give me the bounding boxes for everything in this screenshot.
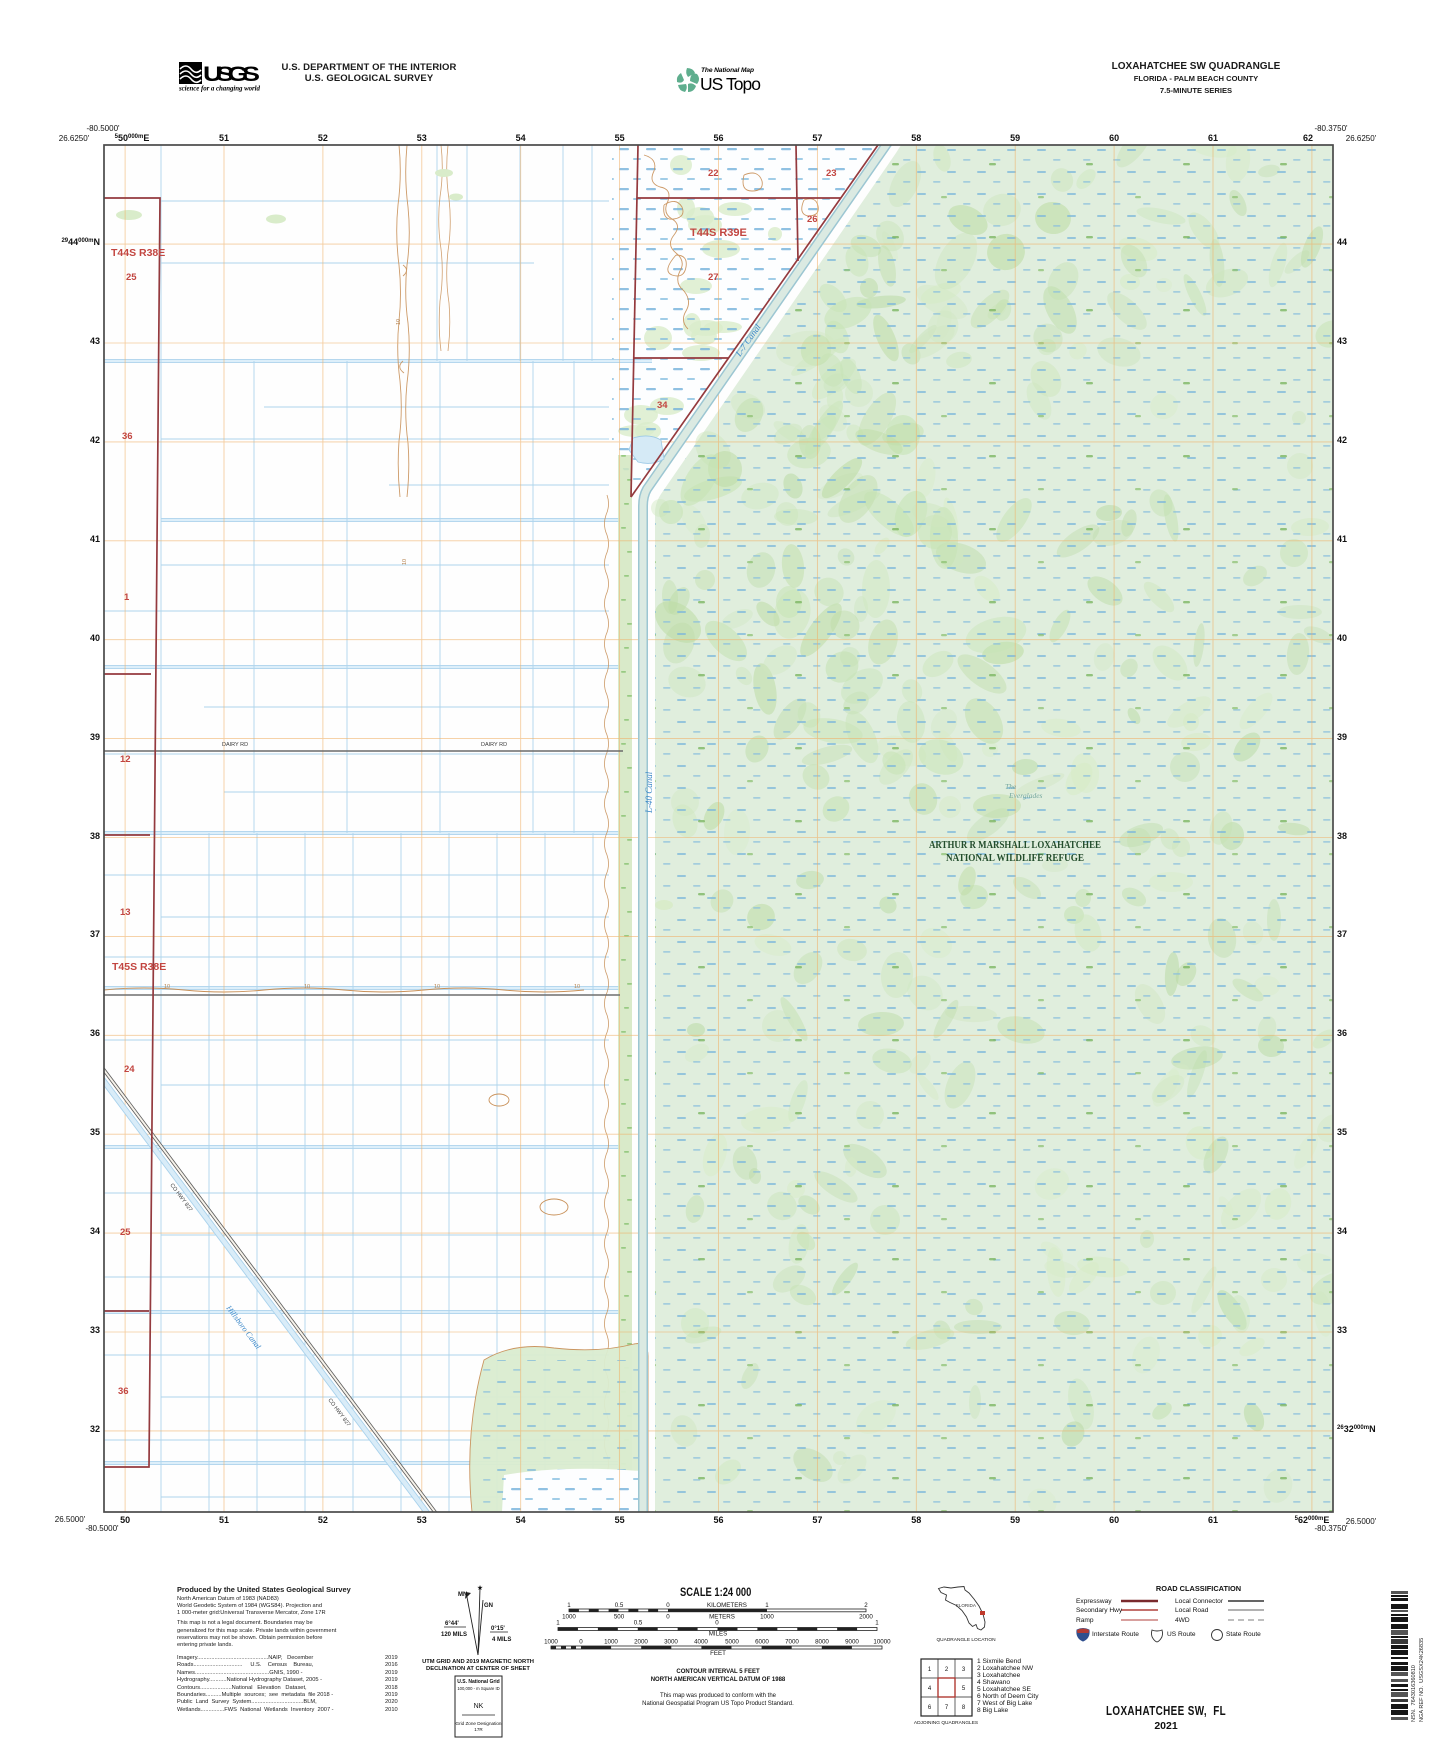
svg-text:1: 1	[124, 592, 130, 603]
svg-text:0.5: 0.5	[634, 1620, 643, 1627]
svg-text:0: 0	[579, 1639, 583, 1646]
svg-text:10: 10	[396, 319, 402, 325]
svg-text:1000: 1000	[760, 1614, 774, 1621]
svg-text:25: 25	[120, 1227, 131, 1238]
svg-text:2000: 2000	[634, 1639, 648, 1646]
svg-text:US Topo: US Topo	[700, 74, 761, 94]
svg-text:ADJOINING QUADRANGLES: ADJOINING QUADRANGLES	[914, 1720, 978, 1726]
svg-text:26: 26	[807, 214, 818, 225]
svg-text:8: 8	[962, 1705, 966, 1711]
svg-text:3: 3	[962, 1667, 966, 1673]
svg-text:3000: 3000	[664, 1639, 678, 1646]
svg-text:12: 12	[120, 754, 131, 765]
svg-text:1: 1	[875, 1620, 879, 1627]
svg-text:2: 2	[945, 1667, 949, 1673]
svg-text:NATIONAL WILDLIFE REFUGE: NATIONAL WILDLIFE REFUGE	[946, 853, 1084, 864]
svg-text:0: 0	[666, 1614, 670, 1621]
svg-text:22: 22	[708, 168, 719, 179]
svg-text:4 MILS: 4 MILS	[492, 1637, 511, 1643]
svg-text:4000: 4000	[694, 1639, 708, 1646]
svg-text:GN: GN	[484, 1603, 493, 1609]
svg-text:10000: 10000	[873, 1639, 891, 1646]
svg-text:1: 1	[765, 1602, 769, 1609]
svg-text:FLORIDA: FLORIDA	[956, 1603, 977, 1608]
svg-text:DAIRY RD: DAIRY RD	[222, 742, 248, 748]
svg-text:7000: 7000	[785, 1639, 799, 1646]
svg-text:10: 10	[164, 984, 170, 990]
svg-text:6: 6	[928, 1705, 932, 1711]
svg-text:ARTHUR R MARSHALL LOXAHATCHEE: ARTHUR R MARSHALL LOXAHATCHEE	[929, 840, 1101, 851]
svg-text:Everglades: Everglades	[1008, 791, 1043, 800]
svg-text:0°15': 0°15'	[491, 1626, 505, 1632]
svg-text:10: 10	[434, 984, 440, 990]
svg-text:T44S R39E: T44S R39E	[690, 227, 747, 239]
svg-text:5: 5	[962, 1686, 966, 1692]
svg-text:T45S R38E: T45S R38E	[112, 961, 166, 973]
svg-text:8000: 8000	[815, 1639, 829, 1646]
svg-text:science for a changing world: science for a changing world	[179, 86, 261, 93]
svg-text:27: 27	[708, 272, 719, 283]
svg-text:0: 0	[666, 1602, 670, 1609]
svg-text:2000: 2000	[859, 1614, 873, 1621]
svg-text:The: The	[1005, 782, 1017, 791]
svg-text:10: 10	[402, 559, 408, 565]
svg-text:10: 10	[574, 984, 580, 990]
svg-text:4: 4	[928, 1686, 932, 1692]
svg-text:Grid Zone Designation: Grid Zone Designation	[456, 1721, 502, 1726]
svg-text:1000: 1000	[562, 1614, 576, 1621]
svg-text:0: 0	[715, 1620, 719, 1627]
svg-text:MILES: MILES	[709, 1631, 728, 1638]
svg-text:0.5: 0.5	[615, 1602, 624, 1609]
svg-text:36: 36	[122, 431, 133, 442]
svg-text:100,000 - m Square ID: 100,000 - m Square ID	[457, 1686, 499, 1691]
svg-text:34: 34	[657, 400, 668, 411]
svg-text:METERS: METERS	[709, 1614, 735, 1621]
svg-text:NGA REF NO. USGSX24K26835: NGA REF NO. USGSX24K26835	[1419, 1638, 1425, 1722]
svg-text:U.S. National Grid: U.S. National Grid	[457, 1679, 500, 1685]
svg-text:L-40 Canal: L-40 Canal	[644, 771, 654, 814]
svg-text:1: 1	[928, 1667, 932, 1673]
svg-text:T44S R38E: T44S R38E	[111, 247, 165, 259]
svg-text:FEET: FEET	[710, 1650, 726, 1657]
svg-text:NK: NK	[474, 1703, 484, 1710]
svg-text:25: 25	[126, 272, 137, 283]
svg-text:1000: 1000	[544, 1639, 558, 1646]
svg-text:1: 1	[556, 1620, 560, 1627]
svg-text:9000: 9000	[845, 1639, 859, 1646]
svg-text:13: 13	[120, 907, 131, 918]
svg-text:6000: 6000	[755, 1639, 769, 1646]
svg-text:17R: 17R	[474, 1727, 483, 1732]
svg-text:23: 23	[826, 168, 837, 179]
svg-text:The National Map: The National Map	[701, 67, 754, 74]
svg-text:500: 500	[614, 1614, 625, 1621]
svg-text:7: 7	[945, 1705, 949, 1711]
svg-text:KILOMETERS: KILOMETERS	[707, 1602, 747, 1609]
svg-text:5000: 5000	[725, 1639, 739, 1646]
svg-text:1000: 1000	[604, 1639, 618, 1646]
svg-text:★: ★	[477, 1584, 483, 1592]
svg-text:36: 36	[118, 1386, 129, 1397]
svg-text:10: 10	[304, 984, 310, 990]
svg-text:NSN. 7643016360810: NSN. 7643016360810	[1411, 1665, 1417, 1722]
svg-text:DAIRY RD: DAIRY RD	[481, 742, 507, 748]
svg-text:2: 2	[864, 1602, 868, 1609]
svg-text:24: 24	[124, 1064, 135, 1075]
svg-text:1: 1	[567, 1602, 571, 1609]
svg-text:QUADRANGLE LOCATION: QUADRANGLE LOCATION	[936, 1637, 996, 1643]
